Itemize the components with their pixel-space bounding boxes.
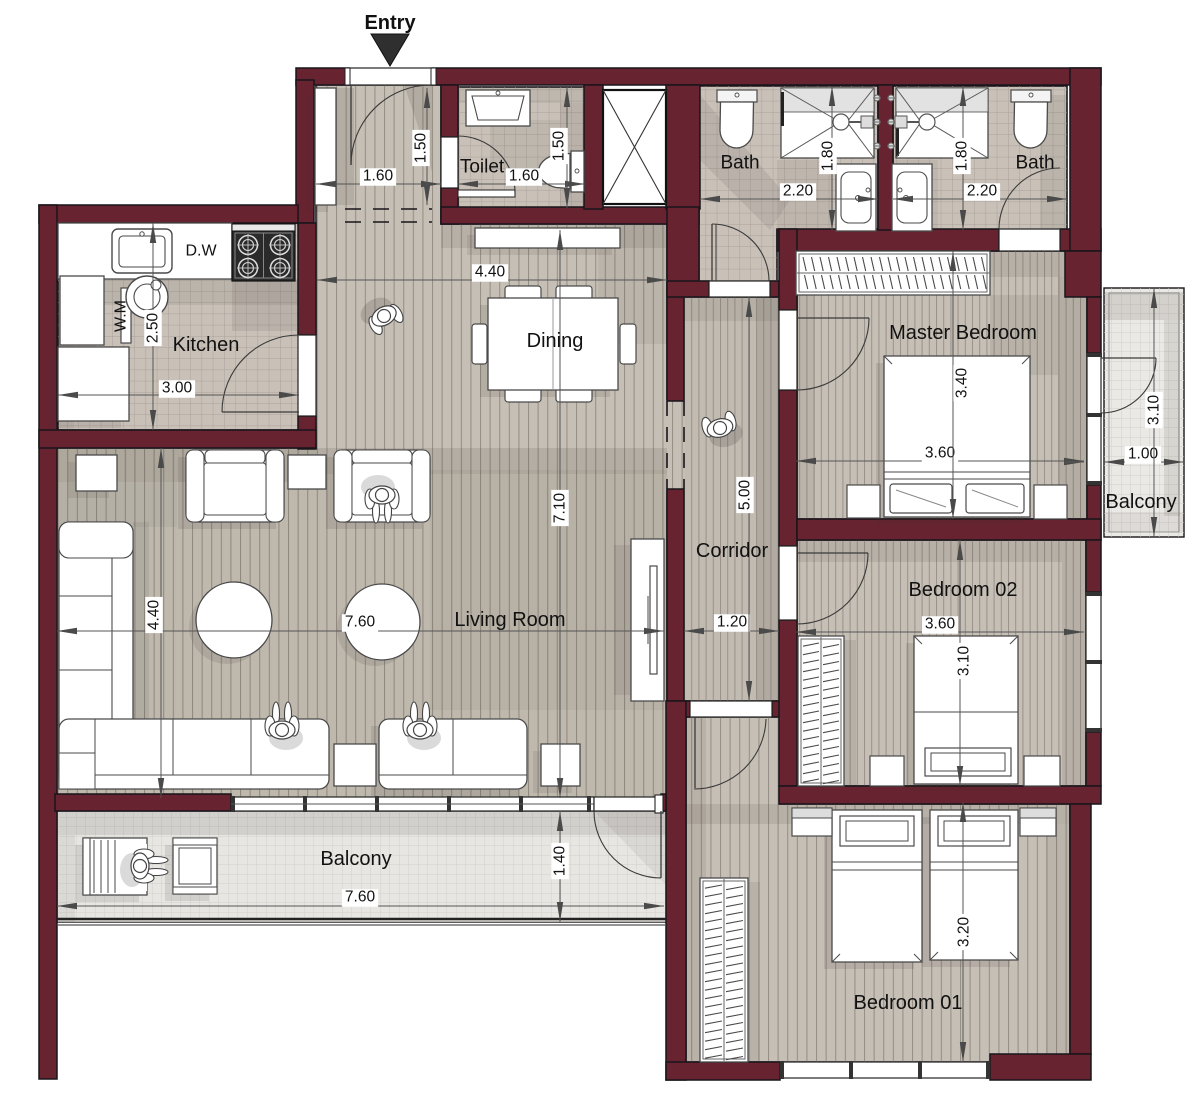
svg-text:Bedroom 01: Bedroom 01	[854, 992, 963, 1014]
svg-text:1.60: 1.60	[509, 168, 540, 185]
svg-text:1.20: 1.20	[717, 614, 748, 631]
svg-text:D.W: D.W	[185, 243, 217, 260]
svg-text:7.60: 7.60	[345, 614, 376, 631]
svg-text:Living Room: Living Room	[454, 609, 565, 631]
svg-text:7.60: 7.60	[345, 889, 376, 906]
svg-text:Toilet: Toilet	[460, 157, 505, 178]
svg-text:3.40: 3.40	[954, 368, 971, 399]
svg-text:4.40: 4.40	[475, 264, 506, 281]
svg-text:W.M: W.M	[113, 300, 130, 332]
svg-text:3.20: 3.20	[956, 917, 973, 948]
svg-text:3.00: 3.00	[162, 380, 193, 397]
svg-text:7.10: 7.10	[552, 493, 569, 524]
svg-text:Balcony: Balcony	[320, 848, 391, 870]
svg-text:Bath: Bath	[1015, 153, 1054, 174]
svg-text:1.50: 1.50	[551, 131, 568, 162]
svg-text:2.50: 2.50	[145, 313, 162, 344]
svg-text:Master Bedroom: Master Bedroom	[889, 322, 1037, 344]
svg-text:3.10: 3.10	[956, 646, 973, 677]
svg-text:1.40: 1.40	[552, 846, 569, 877]
svg-text:5.00: 5.00	[737, 480, 754, 511]
svg-text:Bedroom 02: Bedroom 02	[909, 579, 1018, 601]
svg-text:1.60: 1.60	[363, 168, 394, 185]
svg-text:Bath: Bath	[720, 153, 759, 174]
svg-text:4.40: 4.40	[146, 600, 163, 631]
svg-text:1.80: 1.80	[820, 141, 837, 172]
svg-text:3.60: 3.60	[925, 616, 956, 633]
svg-text:2.20: 2.20	[783, 183, 814, 200]
svg-text:2.20: 2.20	[967, 183, 998, 200]
svg-text:3.10: 3.10	[1146, 395, 1163, 426]
svg-text:Balcony: Balcony	[1105, 491, 1176, 513]
svg-text:Kitchen: Kitchen	[173, 334, 240, 356]
svg-text:1.80: 1.80	[954, 141, 971, 172]
svg-text:Dining: Dining	[527, 330, 584, 352]
svg-text:1.50: 1.50	[413, 133, 430, 164]
svg-text:3.60: 3.60	[925, 445, 956, 462]
svg-text:Corridor: Corridor	[696, 540, 769, 562]
svg-text:Entry: Entry	[364, 12, 416, 34]
